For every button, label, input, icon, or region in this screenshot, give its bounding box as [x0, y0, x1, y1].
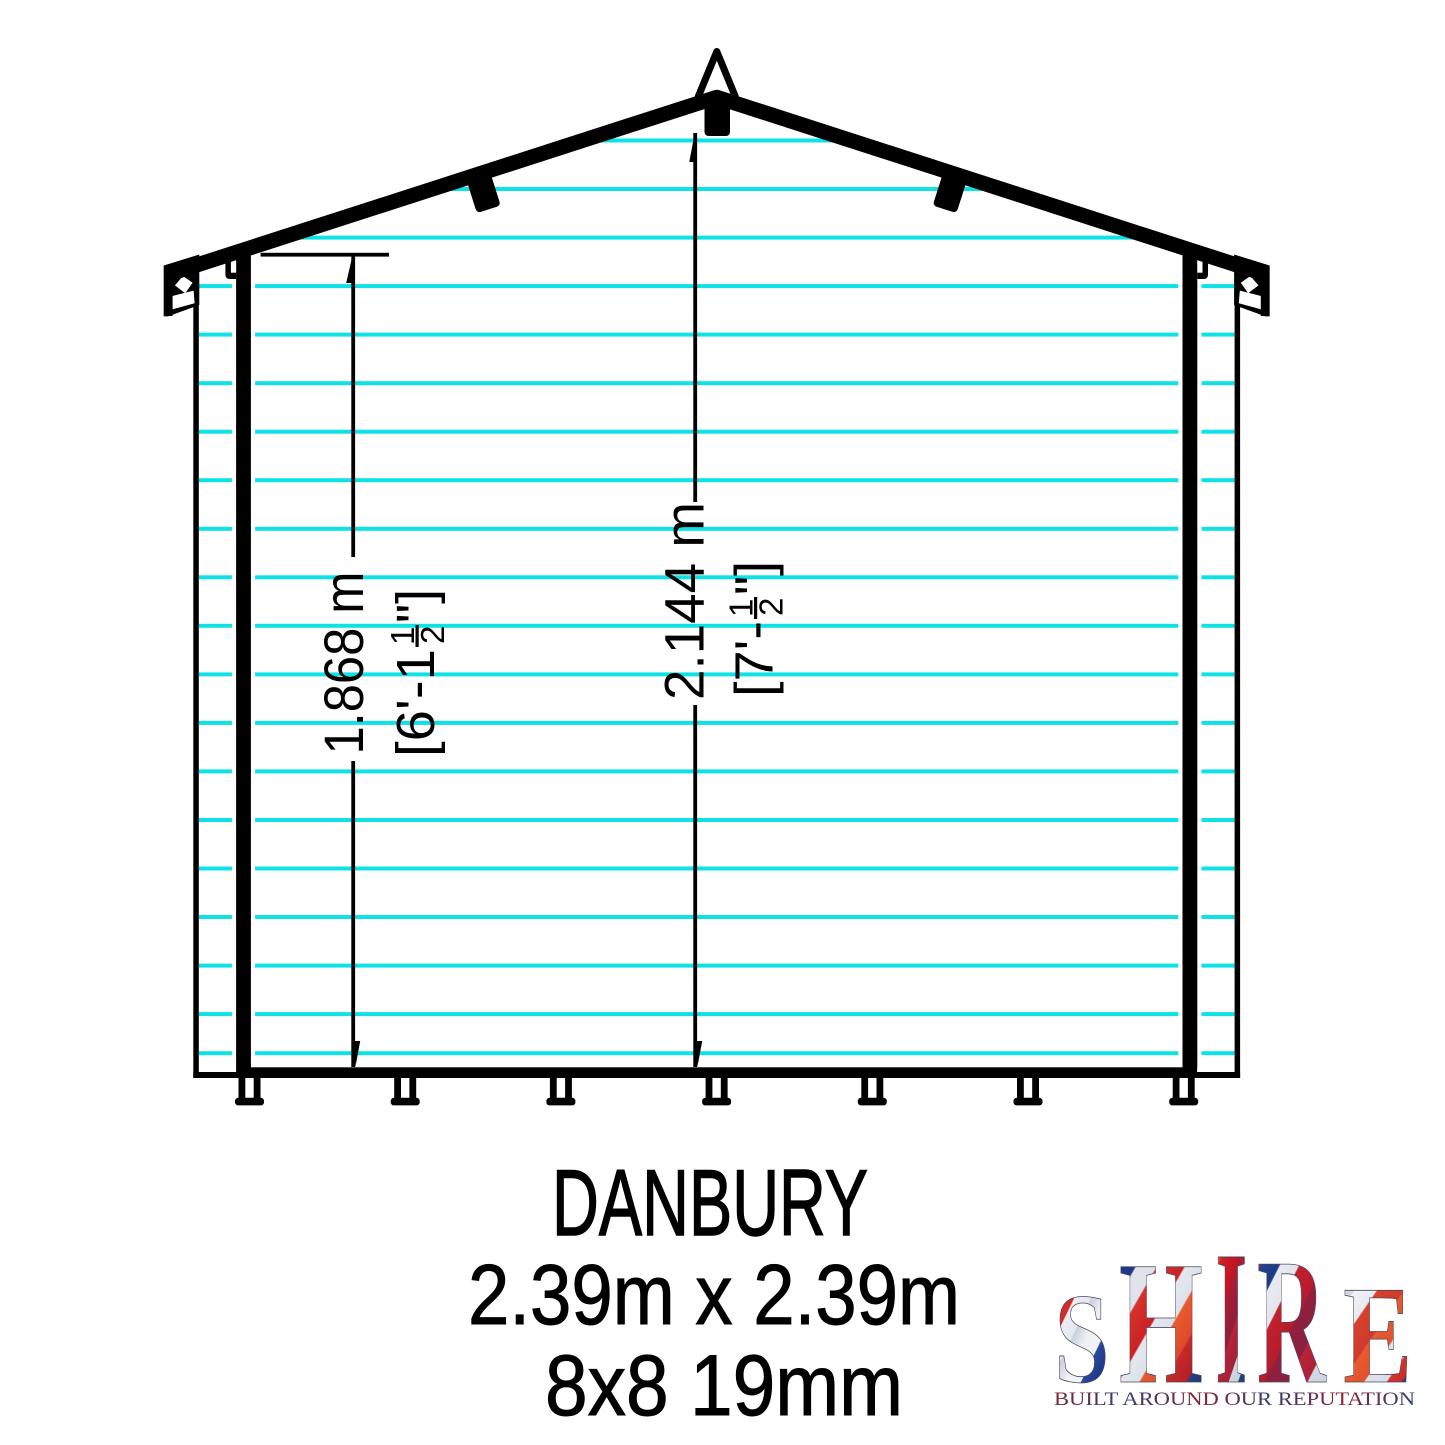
svg-text:1.868 m: 1.868 m — [312, 572, 375, 755]
svg-text:2: 2 — [414, 626, 451, 644]
svg-text:8x8 19mm: 8x8 19mm — [545, 1338, 903, 1434]
svg-text:2.144 m: 2.144 m — [653, 502, 716, 700]
svg-text:"]: "] — [725, 561, 785, 595]
svg-text:[7'-: [7'- — [725, 621, 785, 697]
svg-text:2.39m x 2.39m: 2.39m x 2.39m — [468, 1248, 960, 1343]
svg-text:DANBURY: DANBURY — [552, 1150, 868, 1255]
svg-text:[6'-1: [6'-1 — [386, 649, 446, 757]
svg-text:2: 2 — [753, 598, 790, 616]
svg-text:"]: "] — [386, 589, 446, 623]
svg-text:BUILT AROUND OUR REPUTATION: BUILT AROUND OUR REPUTATION — [1054, 1389, 1415, 1410]
